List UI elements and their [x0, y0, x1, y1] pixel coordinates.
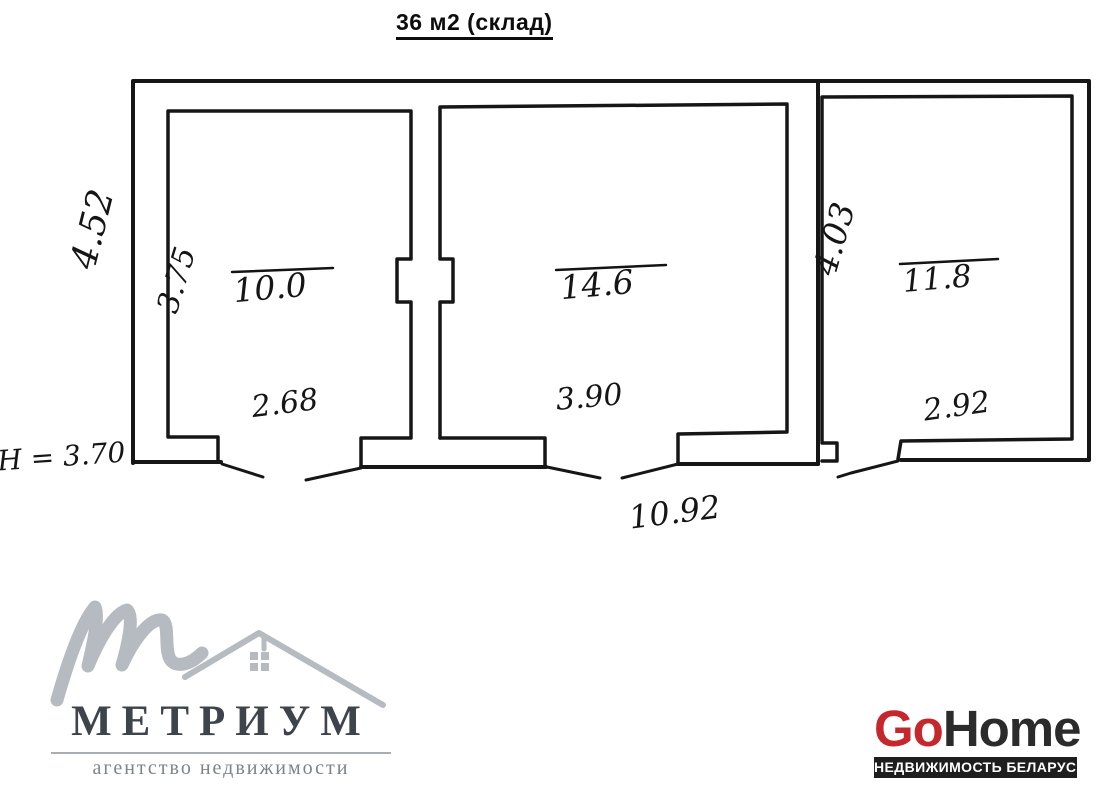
room-left-jamb [361, 438, 411, 466]
ceiling-height-note: Н = 3.70 [0, 436, 126, 478]
room-middle-bottom [440, 438, 545, 466]
door-leaf-right [838, 461, 898, 477]
metrium-house-roof-icon [185, 633, 383, 705]
metrium-logo: МЕТРИУМ агентство недвижимости [45, 593, 397, 793]
room-right-area: 11.8 [901, 258, 973, 300]
dim-room-right-width: 2.92 [920, 385, 992, 429]
door-leaf-middle-a [547, 467, 600, 478]
door-leaf-left-a [222, 464, 263, 477]
gohome-wordmark: GoHome [874, 706, 1080, 753]
gohome-logo: GoHome НЕДВИЖИМОСТЬ БЕЛАРУСИ [874, 706, 1080, 778]
dim-overall-width: 10.92 [627, 488, 723, 537]
gohome-word-go: Go [874, 700, 943, 757]
metrium-tagline: агентство недвижимости [45, 757, 397, 780]
dim-room-middle-width: 3.90 [554, 377, 624, 418]
metrium-name: МЕТРИУМ [45, 697, 397, 746]
metrium-divider [51, 752, 391, 754]
metrium-m-swoosh-icon [57, 607, 202, 700]
dimension-labels: 4.52 3.75 10.0 14.6 11.8 2.68 3.90 4.03 … [0, 185, 992, 536]
gohome-tagline: НЕДВИЖИМОСТЬ БЕЛАРУСИ [874, 757, 1077, 778]
dim-overall-height: 4.52 [63, 185, 122, 274]
dim-room-left-depth: 3.75 [150, 243, 203, 317]
door-leaf-left-b [306, 468, 361, 480]
room-middle-area: 14.6 [559, 262, 636, 307]
room-left-bottom [168, 437, 218, 461]
floorplan-page: 36 м2 (склад) [0, 0, 1112, 800]
dim-room-left-width: 2.68 [249, 382, 321, 425]
metrium-window-icon [250, 652, 269, 671]
dim-room-right-depth: 4.03 [805, 198, 863, 280]
door-leaf-middle-b [622, 464, 678, 478]
room-right-door-jamb [822, 443, 837, 461]
gohome-word-home: Home [943, 700, 1081, 757]
room-left-area: 10.0 [232, 265, 309, 310]
